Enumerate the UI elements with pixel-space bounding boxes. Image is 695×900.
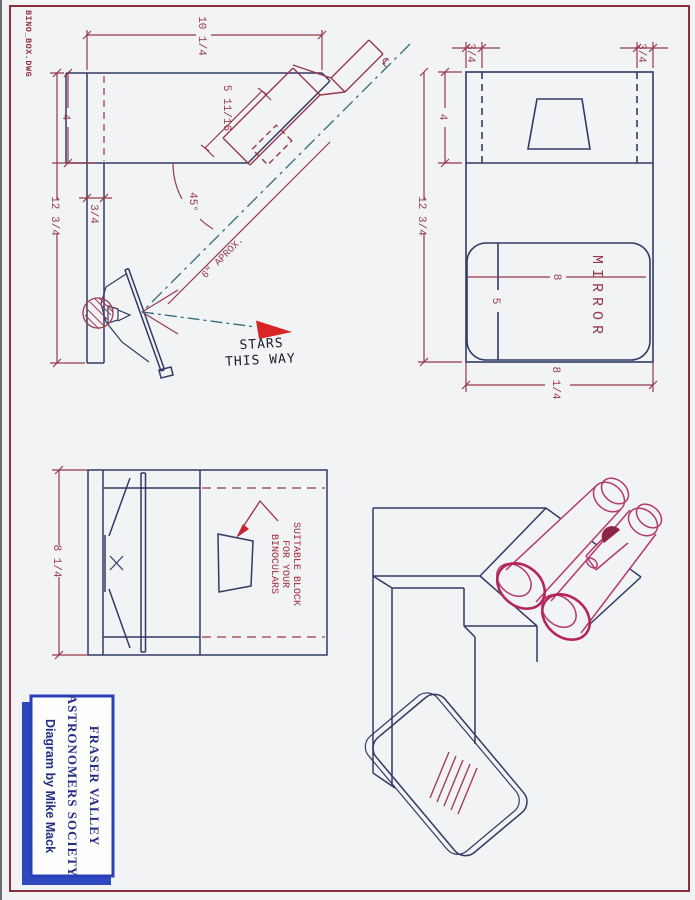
title-line3: Diagram by Mike Mack — [43, 719, 57, 853]
top-view-structure — [466, 72, 653, 362]
title-line2: ASTRONOMERS SOCIETY — [65, 695, 80, 878]
drawing-filename: BINO_BOX.DWG — [23, 10, 33, 77]
dim-total-height: 12 3/4 — [48, 196, 60, 236]
drawing-filename-text: BINO_BOX.DWG — [23, 10, 33, 77]
dim-right-inset: 3/4 — [635, 43, 647, 63]
front-view-hidden-lines — [202, 488, 325, 637]
top-view: 3/4 3/4 4 12 3/4 8 5 8 1/4 MIRROR — [415, 42, 668, 400]
mirror-label: MIRROR — [588, 255, 605, 339]
dim-upper-height: 4 — [436, 114, 448, 121]
title-block: FRASER VALLEY ASTRONOMERS SOCIETY Diagra… — [22, 695, 113, 885]
leader-arrowhead-icon — [236, 524, 249, 538]
note-line3: BINOCULARS — [268, 534, 279, 594]
dim-height: 8 1/4 — [50, 544, 62, 577]
block-note: SUITABLE BLOCK FOR YOUR BINOCULARS — [268, 522, 301, 606]
title-line1: FRASER VALLEY — [87, 726, 102, 847]
block-outline — [528, 99, 590, 149]
side-view: 10 1/4 12 3/4 4 3/4 5 11/16 45° 6" APROX… — [48, 16, 410, 378]
perspective-mirror — [360, 684, 533, 865]
note-line2: FOR YOUR — [279, 540, 290, 588]
dim-total-width: 8 1/4 — [549, 366, 561, 399]
block-leader — [236, 501, 278, 538]
optical-centerline — [142, 44, 410, 327]
block-front-outline — [218, 534, 253, 592]
scanned-drawing-page: BINO_BOX.DWG — [0, 0, 695, 900]
binoculars-illustration — [488, 473, 666, 649]
note-line1: SUITABLE BLOCK — [290, 522, 301, 606]
dim-mirror-distance: 6" APROX. — [200, 235, 247, 282]
dim-board-thickness: 3/4 — [87, 204, 99, 224]
dim-angle: 45° — [186, 192, 198, 212]
side-view-binocular-tube — [223, 40, 383, 165]
dim-total-height: 12 3/4 — [415, 196, 427, 236]
dim-tube-length: 5 11/16 — [220, 85, 232, 131]
mirror-hatch — [430, 752, 477, 814]
stars-annotation: STARS THIS WAY — [224, 335, 296, 370]
dim-mirror-height: 5 — [489, 298, 501, 305]
stars-line1: STARS — [239, 336, 284, 353]
stars-line2: THIS WAY — [225, 351, 296, 370]
top-view-dimensions — [418, 42, 668, 392]
dim-top-width: 10 1/4 — [195, 16, 207, 56]
dim-left-inset: 3/4 — [464, 43, 476, 63]
hidden-block-outline — [252, 125, 292, 165]
perspective-view — [360, 473, 667, 865]
drawing-canvas: BINO_BOX.DWG — [0, 0, 695, 900]
scan-edge — [0, 0, 2, 900]
dim-upper-height: 4 — [59, 114, 71, 121]
dim-mirror-width: 8 — [550, 274, 562, 281]
front-view: SUITABLE BLOCK FOR YOUR BINOCULARS 8 1/4 — [50, 466, 327, 659]
